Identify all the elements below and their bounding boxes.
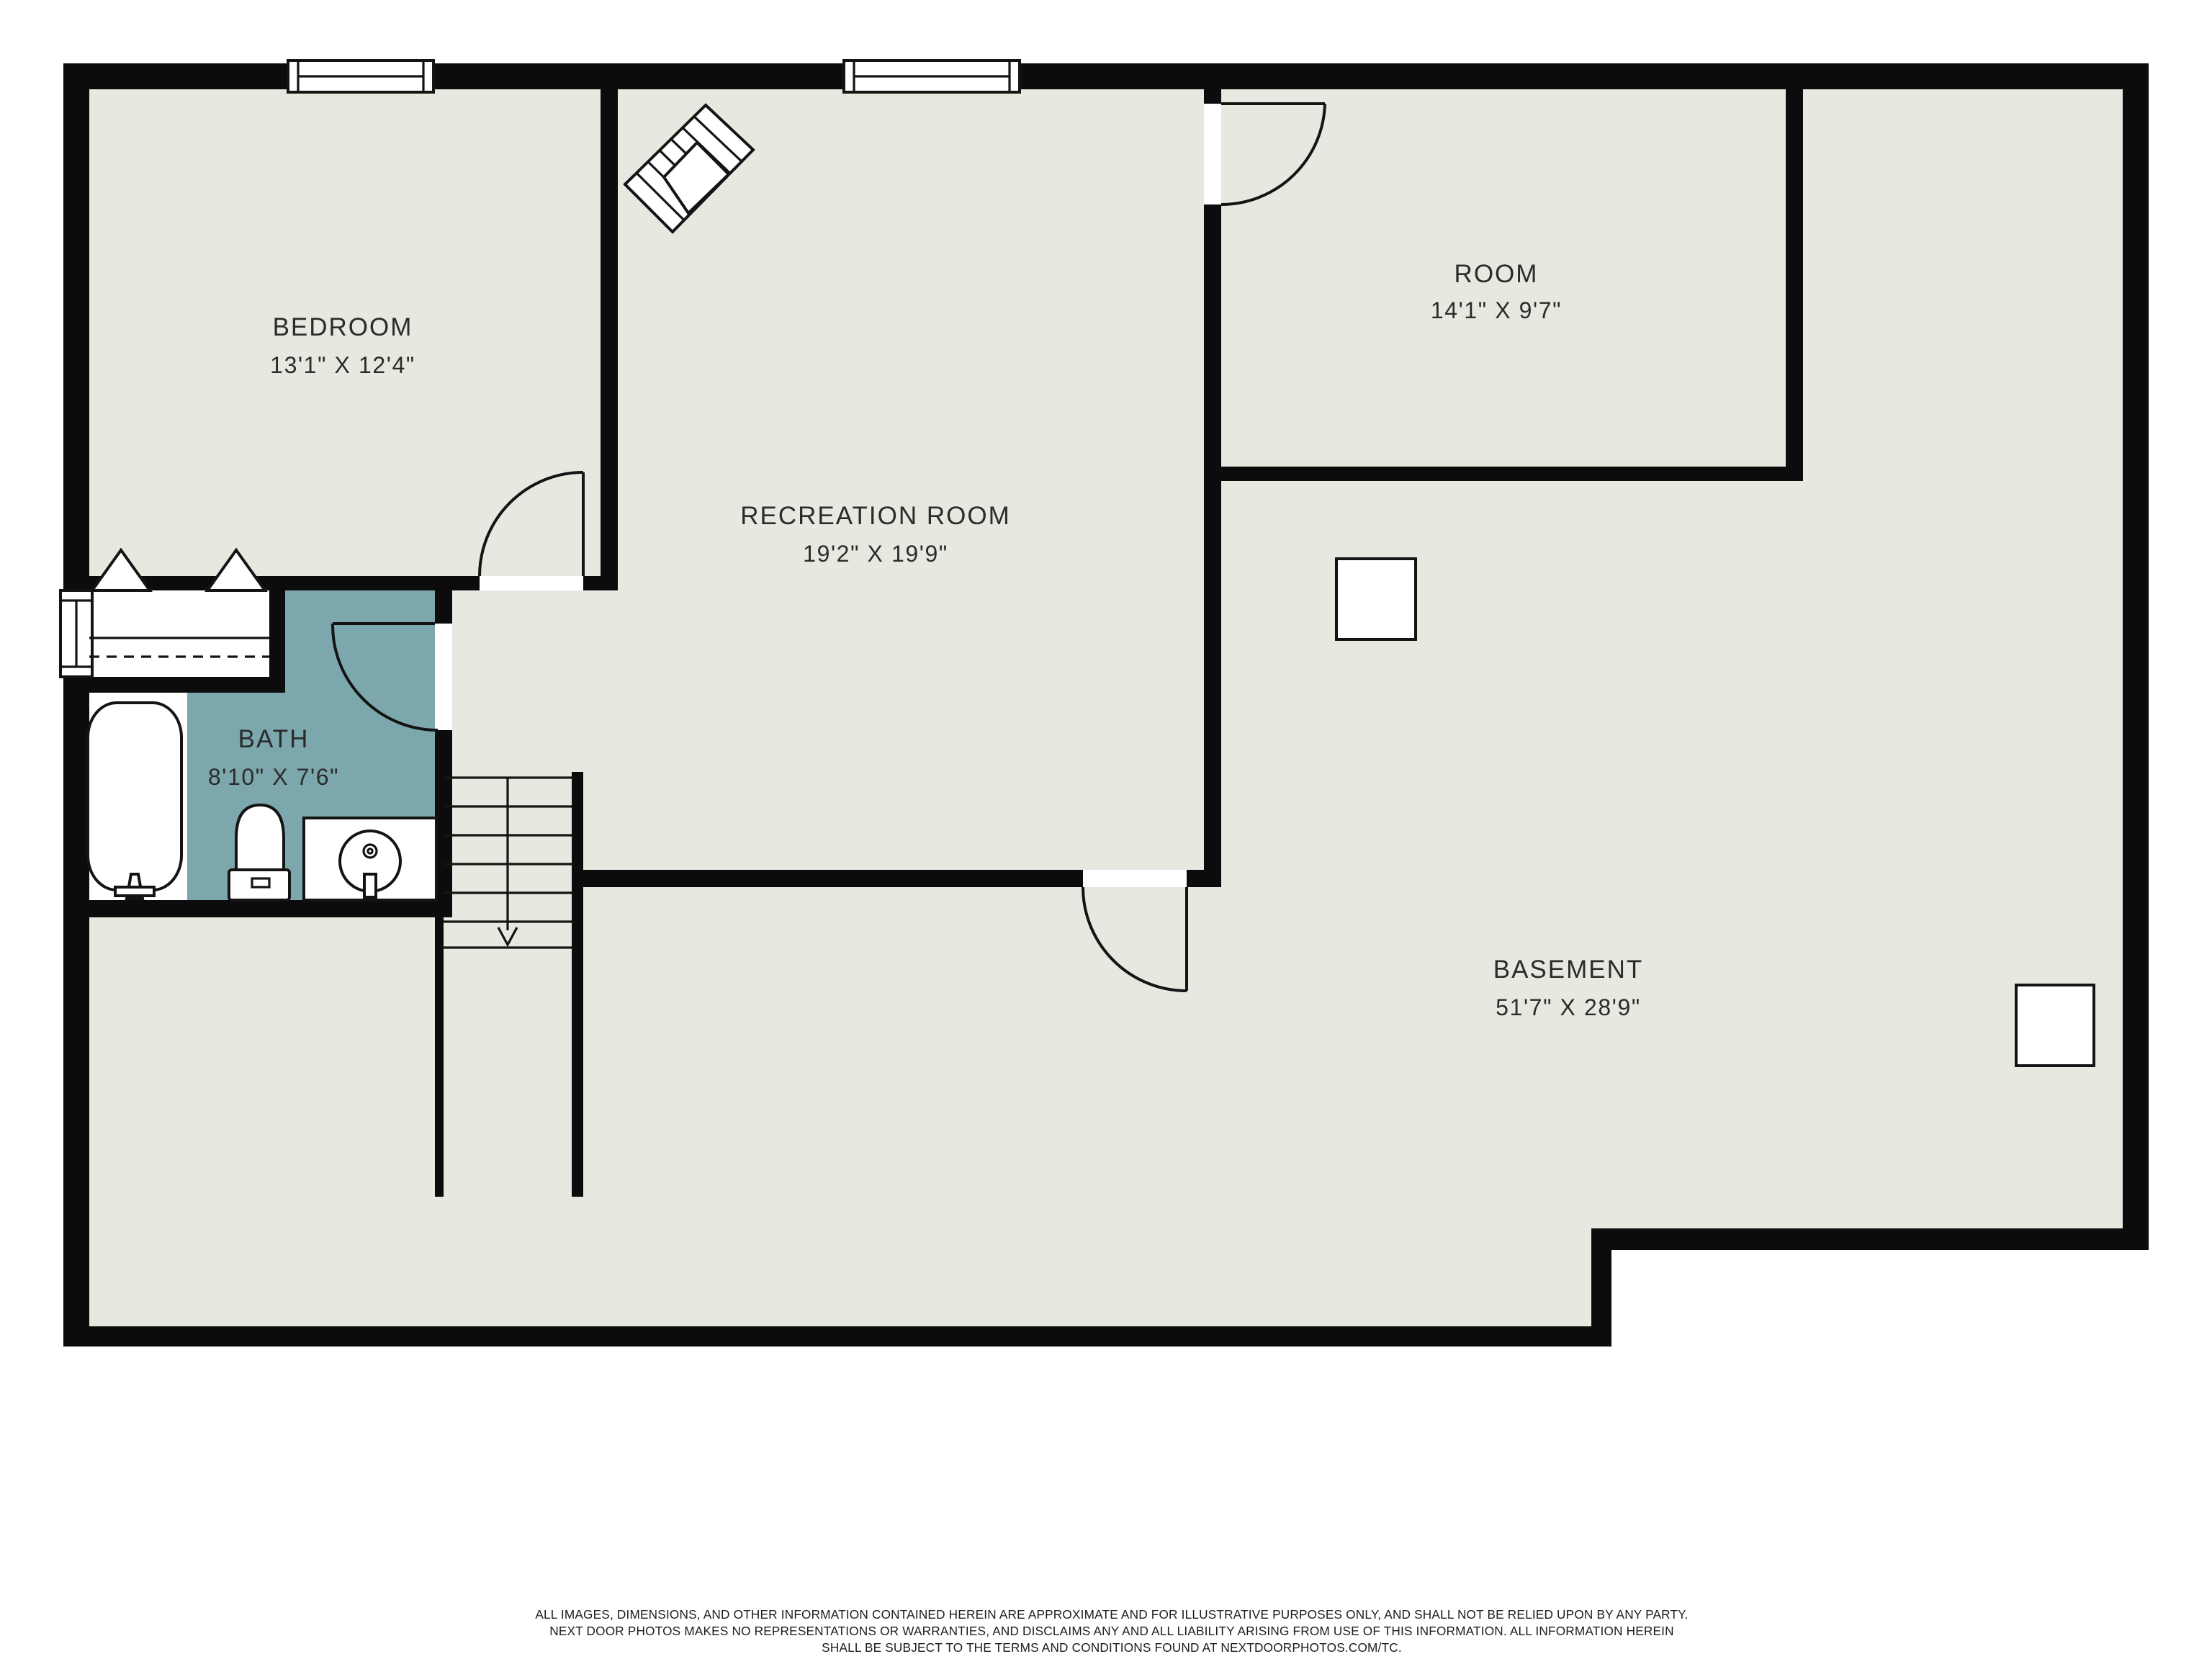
wall-bottom-left: [63, 1326, 1611, 1346]
rec-door-opening: [1083, 870, 1187, 887]
stair-right-rail: [572, 772, 583, 1197]
disclaimer: ALL IMAGES, DIMENSIONS, AND OTHER INFORM…: [535, 1607, 1688, 1655]
toilet: [229, 805, 289, 900]
recreation-room-dims: 19'2" X 19'9": [803, 541, 948, 567]
disclaimer-line-2: NEXT DOOR PHOTOS MAKES NO REPRESENTATION…: [549, 1624, 1674, 1638]
bath-dims: 8'10" X 7'6": [208, 764, 339, 790]
wall-right: [2123, 63, 2149, 1250]
sink-vanity: [304, 818, 436, 900]
basement-dims: 51'7" X 28'9": [1496, 994, 1641, 1020]
wall-bath-bottom: [72, 900, 452, 917]
wall-closet-bottom: [72, 677, 285, 693]
closet-window: [60, 590, 92, 677]
bath-label: BATH: [238, 725, 310, 753]
bedroom-door-opening: [480, 576, 583, 590]
bedroom-label: BEDROOM: [273, 313, 413, 341]
closet-area: [89, 590, 269, 677]
wall-left: [63, 63, 89, 1346]
sink-faucet: [364, 874, 376, 897]
floor-plan-canvas: BEDROOM 13'1" X 12'4" RECREATION ROOM 19…: [0, 0, 2212, 1659]
disclaimer-line-1: ALL IMAGES, DIMENSIONS, AND OTHER INFORM…: [535, 1607, 1688, 1622]
room-dims: 14'1" X 9'7": [1431, 297, 1562, 323]
wall-room-bottom: [1204, 467, 1803, 481]
bath-door-opening: [435, 624, 452, 730]
bathtub: [88, 703, 181, 899]
toilet-tank: [229, 870, 289, 900]
room-label: ROOM: [1455, 260, 1539, 288]
recreation-room-window: [844, 60, 1020, 92]
bedroom-window: [288, 60, 433, 92]
room-door-opening: [1204, 104, 1221, 204]
support-post: [1336, 559, 1416, 639]
recreation-room-label: RECREATION ROOM: [740, 502, 1010, 530]
wall-bottom-right: [1591, 1228, 2149, 1250]
bedroom-dims: 13'1" X 12'4": [270, 352, 415, 378]
tub-faucet-bar: [115, 887, 154, 896]
wall-room-right: [1786, 63, 1803, 481]
support-post: [2016, 985, 2094, 1066]
wall-bedroom-right: [601, 63, 618, 590]
disclaimer-line-3: SHALL BE SUBJECT TO THE TERMS AND CONDIT…: [822, 1640, 1402, 1655]
wall-center-divider: [1204, 89, 1221, 887]
basement-label: BASEMENT: [1493, 956, 1644, 984]
